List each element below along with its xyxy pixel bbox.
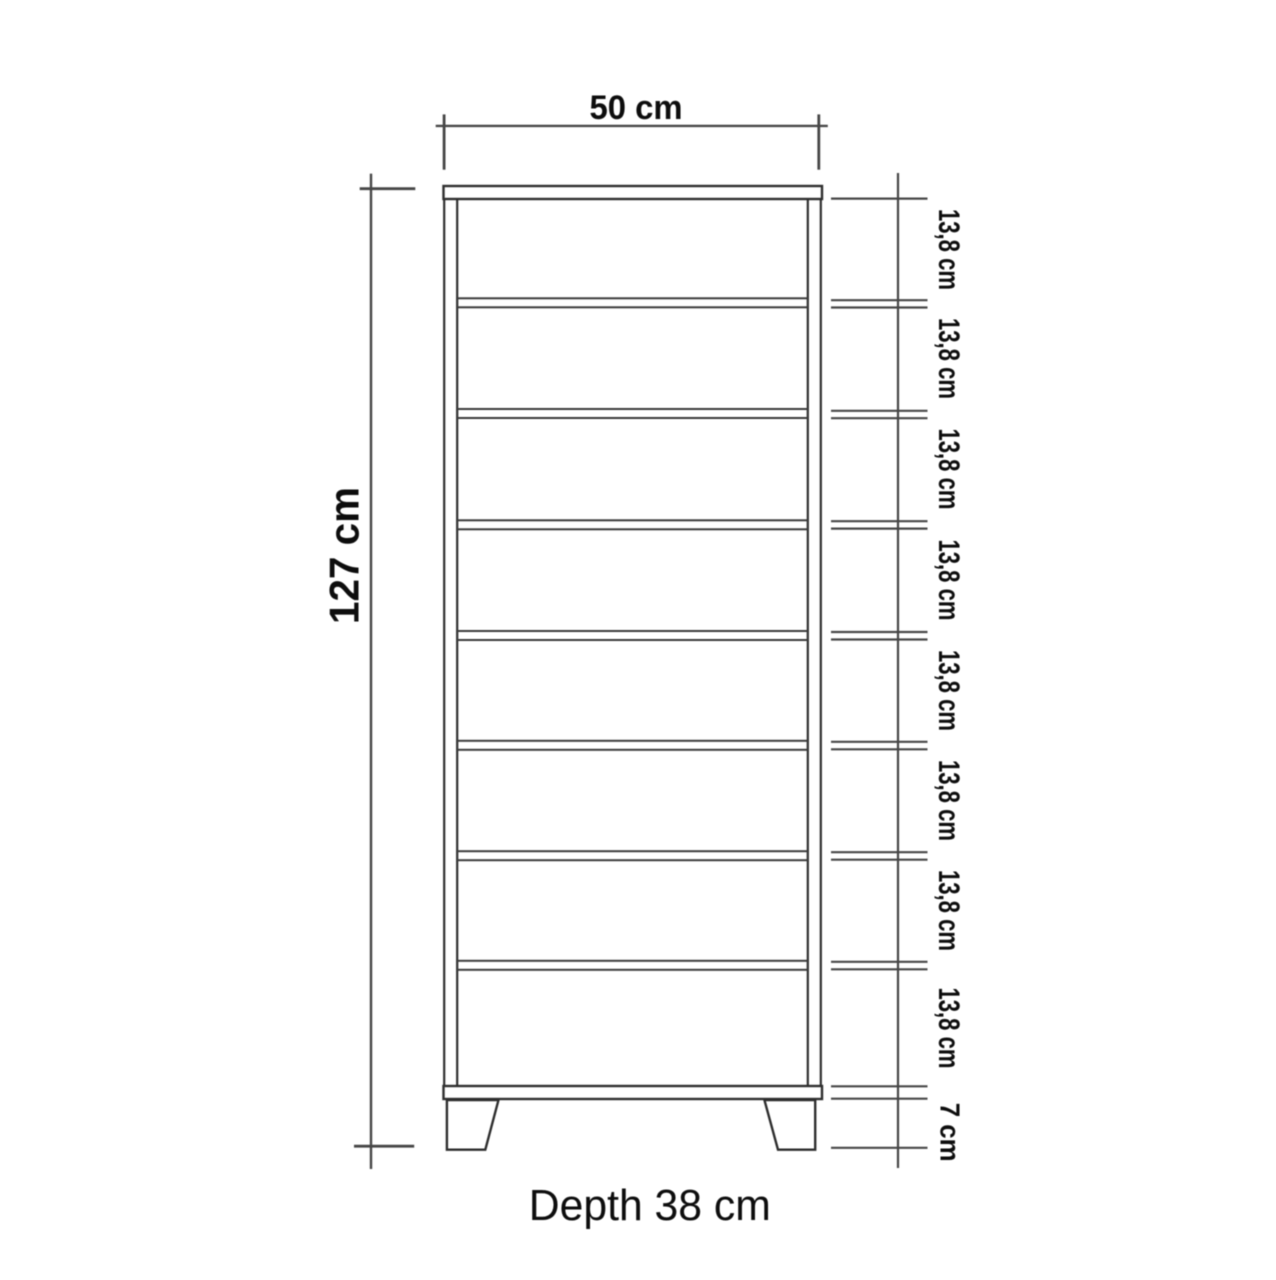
svg-text:13,8 cm: 13,8 cm [932,318,965,399]
svg-text:13,8 cm: 13,8 cm [932,870,965,951]
svg-text:13,8 cm: 13,8 cm [932,429,965,510]
svg-text:13,8 cm: 13,8 cm [932,650,965,731]
svg-text:13,8 cm: 13,8 cm [932,988,965,1069]
svg-text:13,8 cm: 13,8 cm [932,760,965,841]
svg-text:13,8 cm: 13,8 cm [932,209,965,290]
svg-text:Depth 38 cm: Depth 38 cm [529,1181,771,1230]
svg-text:7 cm: 7 cm [934,1103,965,1162]
svg-text:13,8 cm: 13,8 cm [932,540,965,621]
svg-text:50 cm: 50 cm [590,89,683,127]
svg-text:127 cm: 127 cm [321,487,368,624]
